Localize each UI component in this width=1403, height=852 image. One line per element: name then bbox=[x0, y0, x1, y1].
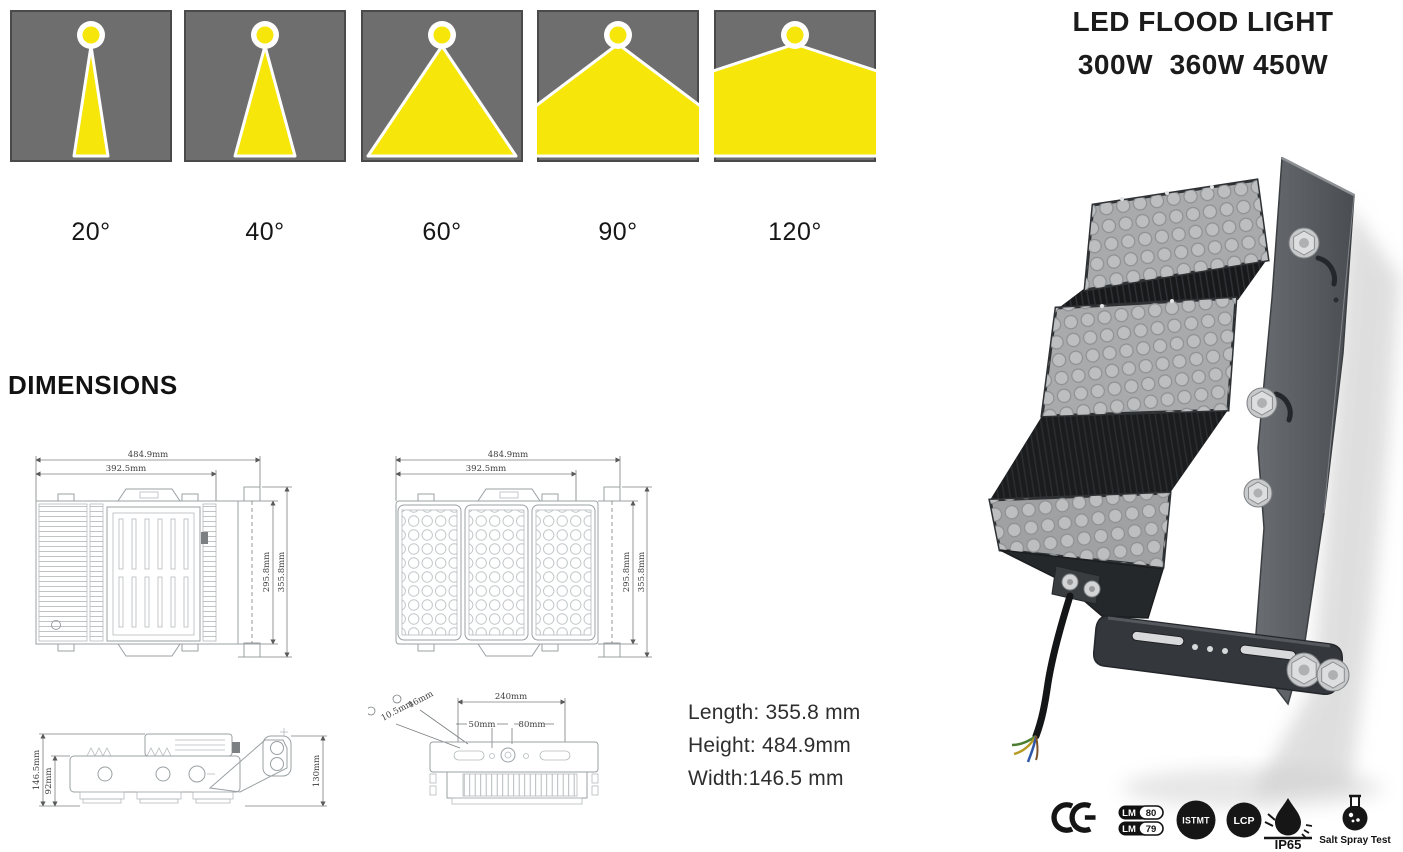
product-title: LED FLOOD LIGHT bbox=[1036, 6, 1370, 38]
product-mounting-bracket bbox=[1094, 616, 1349, 694]
product-wattages: 300W 360W 450W bbox=[1036, 49, 1370, 81]
spec-text-block: Length: 355.8 mm Height: 484.9mm Width:1… bbox=[688, 702, 860, 801]
beam-angle-label: 60° bbox=[361, 218, 523, 247]
lm79-value: 79 bbox=[1146, 824, 1157, 835]
front-outer-height-label: 355.8mm bbox=[637, 552, 647, 592]
ip65-label: IP65 bbox=[1275, 837, 1302, 852]
ip65-badge: IP65 bbox=[1262, 794, 1314, 850]
lcp-badge: LCP bbox=[1225, 801, 1263, 839]
back-view-body bbox=[36, 487, 260, 657]
back-inner-height-label: 295.8mm bbox=[262, 552, 272, 592]
product-power-cable bbox=[1012, 596, 1070, 762]
plate-bolt-lower bbox=[1244, 479, 1272, 507]
product-image bbox=[952, 148, 1403, 820]
lm80-lm79-badge: LM 80 LM 79 bbox=[1118, 805, 1164, 837]
front-view-body bbox=[396, 487, 620, 657]
beam-cone-120-icon bbox=[714, 10, 876, 162]
bottom-mount-spacing-label: 240mm bbox=[495, 692, 527, 702]
bottom-offset-left-label: 50mm bbox=[469, 720, 496, 730]
plate-bolt-top bbox=[1289, 228, 1319, 258]
spec-length: Length: 355.8 mm bbox=[688, 702, 860, 724]
spec-width: Width:146.5 mm bbox=[688, 768, 860, 790]
side-bracket-depth-label: 130mm bbox=[312, 755, 322, 787]
beam-angle-label: 120° bbox=[714, 218, 876, 247]
bottom-view-body bbox=[430, 742, 598, 804]
dimension-drawing-side-view: 146.5mm 92mm 130mm bbox=[25, 728, 345, 838]
front-inner-height-label: 295.8mm bbox=[622, 552, 632, 592]
front-inner-width-label: 392.5mm bbox=[466, 464, 506, 474]
bottom-slot-width-label: 10.5mm bbox=[380, 698, 416, 723]
dimension-drawing-back-view: 484.9mm 392.5mm 295.8mm 355.8mm bbox=[20, 444, 320, 668]
beam-angle-label: 40° bbox=[184, 218, 346, 247]
ce-mark-icon bbox=[1052, 801, 1098, 834]
beam-cone-90-icon bbox=[537, 10, 699, 162]
certification-row: LM 80 LM 79 ISTMT LCP IP65 bbox=[1030, 790, 1403, 852]
bottom-offset-right-label: 80mm bbox=[519, 720, 546, 730]
dimension-drawing-bottom-view: 16mm 10.5mm 240mm 50mm 80mm bbox=[368, 680, 668, 830]
lcp-label: LCP bbox=[1234, 815, 1255, 827]
beam-cone-40-icon bbox=[184, 10, 346, 162]
beam-cone-60-icon bbox=[361, 10, 523, 162]
plate-bolt-middle bbox=[1247, 388, 1277, 418]
beam-angle-figure-60: 60° bbox=[361, 10, 523, 247]
beam-angle-label: 90° bbox=[537, 218, 699, 247]
spec-height: Height: 484.9mm bbox=[688, 735, 860, 757]
istmt-badge: ISTMT bbox=[1175, 799, 1217, 841]
istmt-label: ISTMT bbox=[1182, 816, 1210, 826]
salt-spray-label: Salt Spray Test bbox=[1319, 835, 1391, 846]
bracket-bolt-left bbox=[1287, 653, 1321, 687]
side-body-height-label: 92mm bbox=[44, 768, 54, 795]
product-led-modules bbox=[990, 180, 1268, 567]
bottom-view-dimension-lines: 16mm 10.5mm 240mm 50mm 80mm bbox=[368, 689, 565, 748]
back-outer-width-label: 484.9mm bbox=[128, 450, 168, 460]
flask-icon bbox=[1343, 796, 1368, 831]
product-header: LED FLOOD LIGHT 300W 360W 450W bbox=[1036, 6, 1370, 81]
beam-angle-figure-90: 90° bbox=[537, 10, 699, 247]
side-outer-height-label: 146.5mm bbox=[32, 750, 42, 790]
beam-angle-figure-40: 40° bbox=[184, 10, 346, 247]
bracket-bolt-right bbox=[1317, 659, 1349, 691]
dimensions-heading: DIMENSIONS bbox=[8, 370, 178, 401]
waterproof-drop-icon bbox=[1264, 798, 1312, 838]
beam-angle-figure-120: 120° bbox=[714, 10, 876, 247]
beam-angle-figure-20: 20° bbox=[10, 10, 172, 247]
side-view-body bbox=[70, 728, 291, 803]
beam-angle-label: 20° bbox=[10, 218, 172, 247]
lm80-value: 80 bbox=[1146, 808, 1157, 819]
front-outer-width-label: 484.9mm bbox=[488, 450, 528, 460]
lm80-label: LM bbox=[1122, 808, 1136, 819]
lm79-label: LM bbox=[1122, 824, 1136, 835]
salt-spray-test-badge: Salt Spray Test bbox=[1316, 793, 1394, 847]
beam-cone-20-icon bbox=[10, 10, 172, 162]
back-outer-height-label: 355.8mm bbox=[277, 552, 287, 592]
back-inner-width-label: 392.5mm bbox=[106, 464, 146, 474]
dimension-drawing-front-view: 484.9mm 392.5mm 295.8mm 355.8mm bbox=[380, 444, 680, 668]
